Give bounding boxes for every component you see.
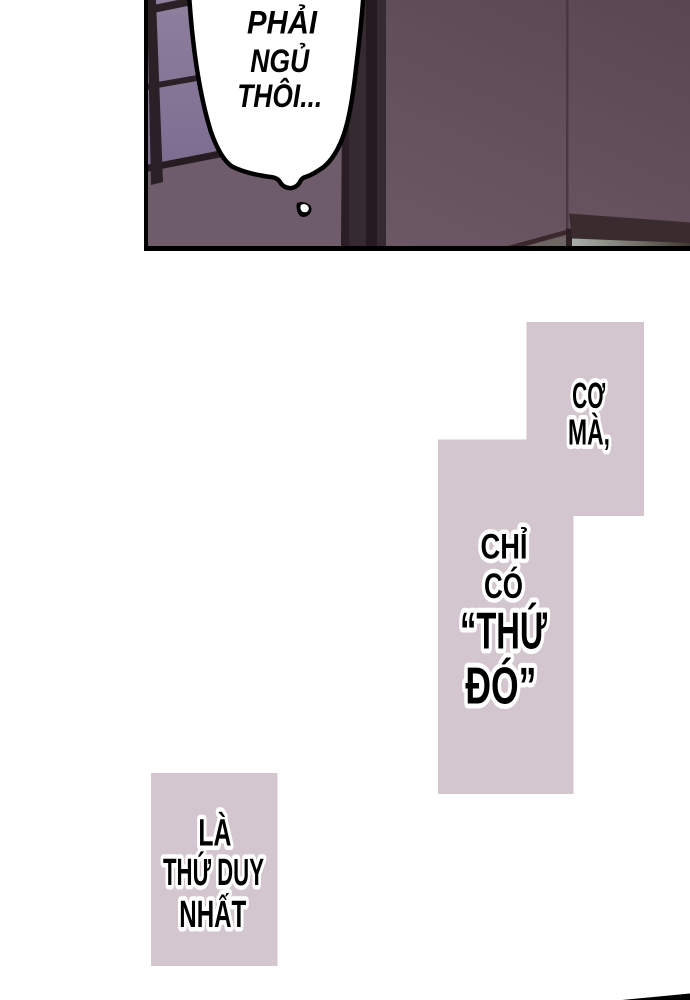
svg-text:“THỨ: “THỨ <box>460 603 548 661</box>
svg-text:THỨ DUY: THỨ DUY <box>163 850 264 894</box>
svg-text:ĐÓ”: ĐÓ” <box>465 657 536 715</box>
svg-text:NHẤT: NHẤT <box>179 892 246 936</box>
svg-text:PHẢI: PHẢI <box>247 5 318 41</box>
svg-text:LÀ: LÀ <box>198 811 231 855</box>
svg-text:MÀ,: MÀ, <box>568 412 610 453</box>
svg-text:CHỈ: CHỈ <box>481 526 528 566</box>
svg-text:NGỦ: NGỦ <box>250 43 310 79</box>
svg-text:THÔI...: THÔI... <box>237 78 322 114</box>
svg-text:CÓ: CÓ <box>484 566 523 606</box>
svg-text:CƠ: CƠ <box>572 375 605 416</box>
